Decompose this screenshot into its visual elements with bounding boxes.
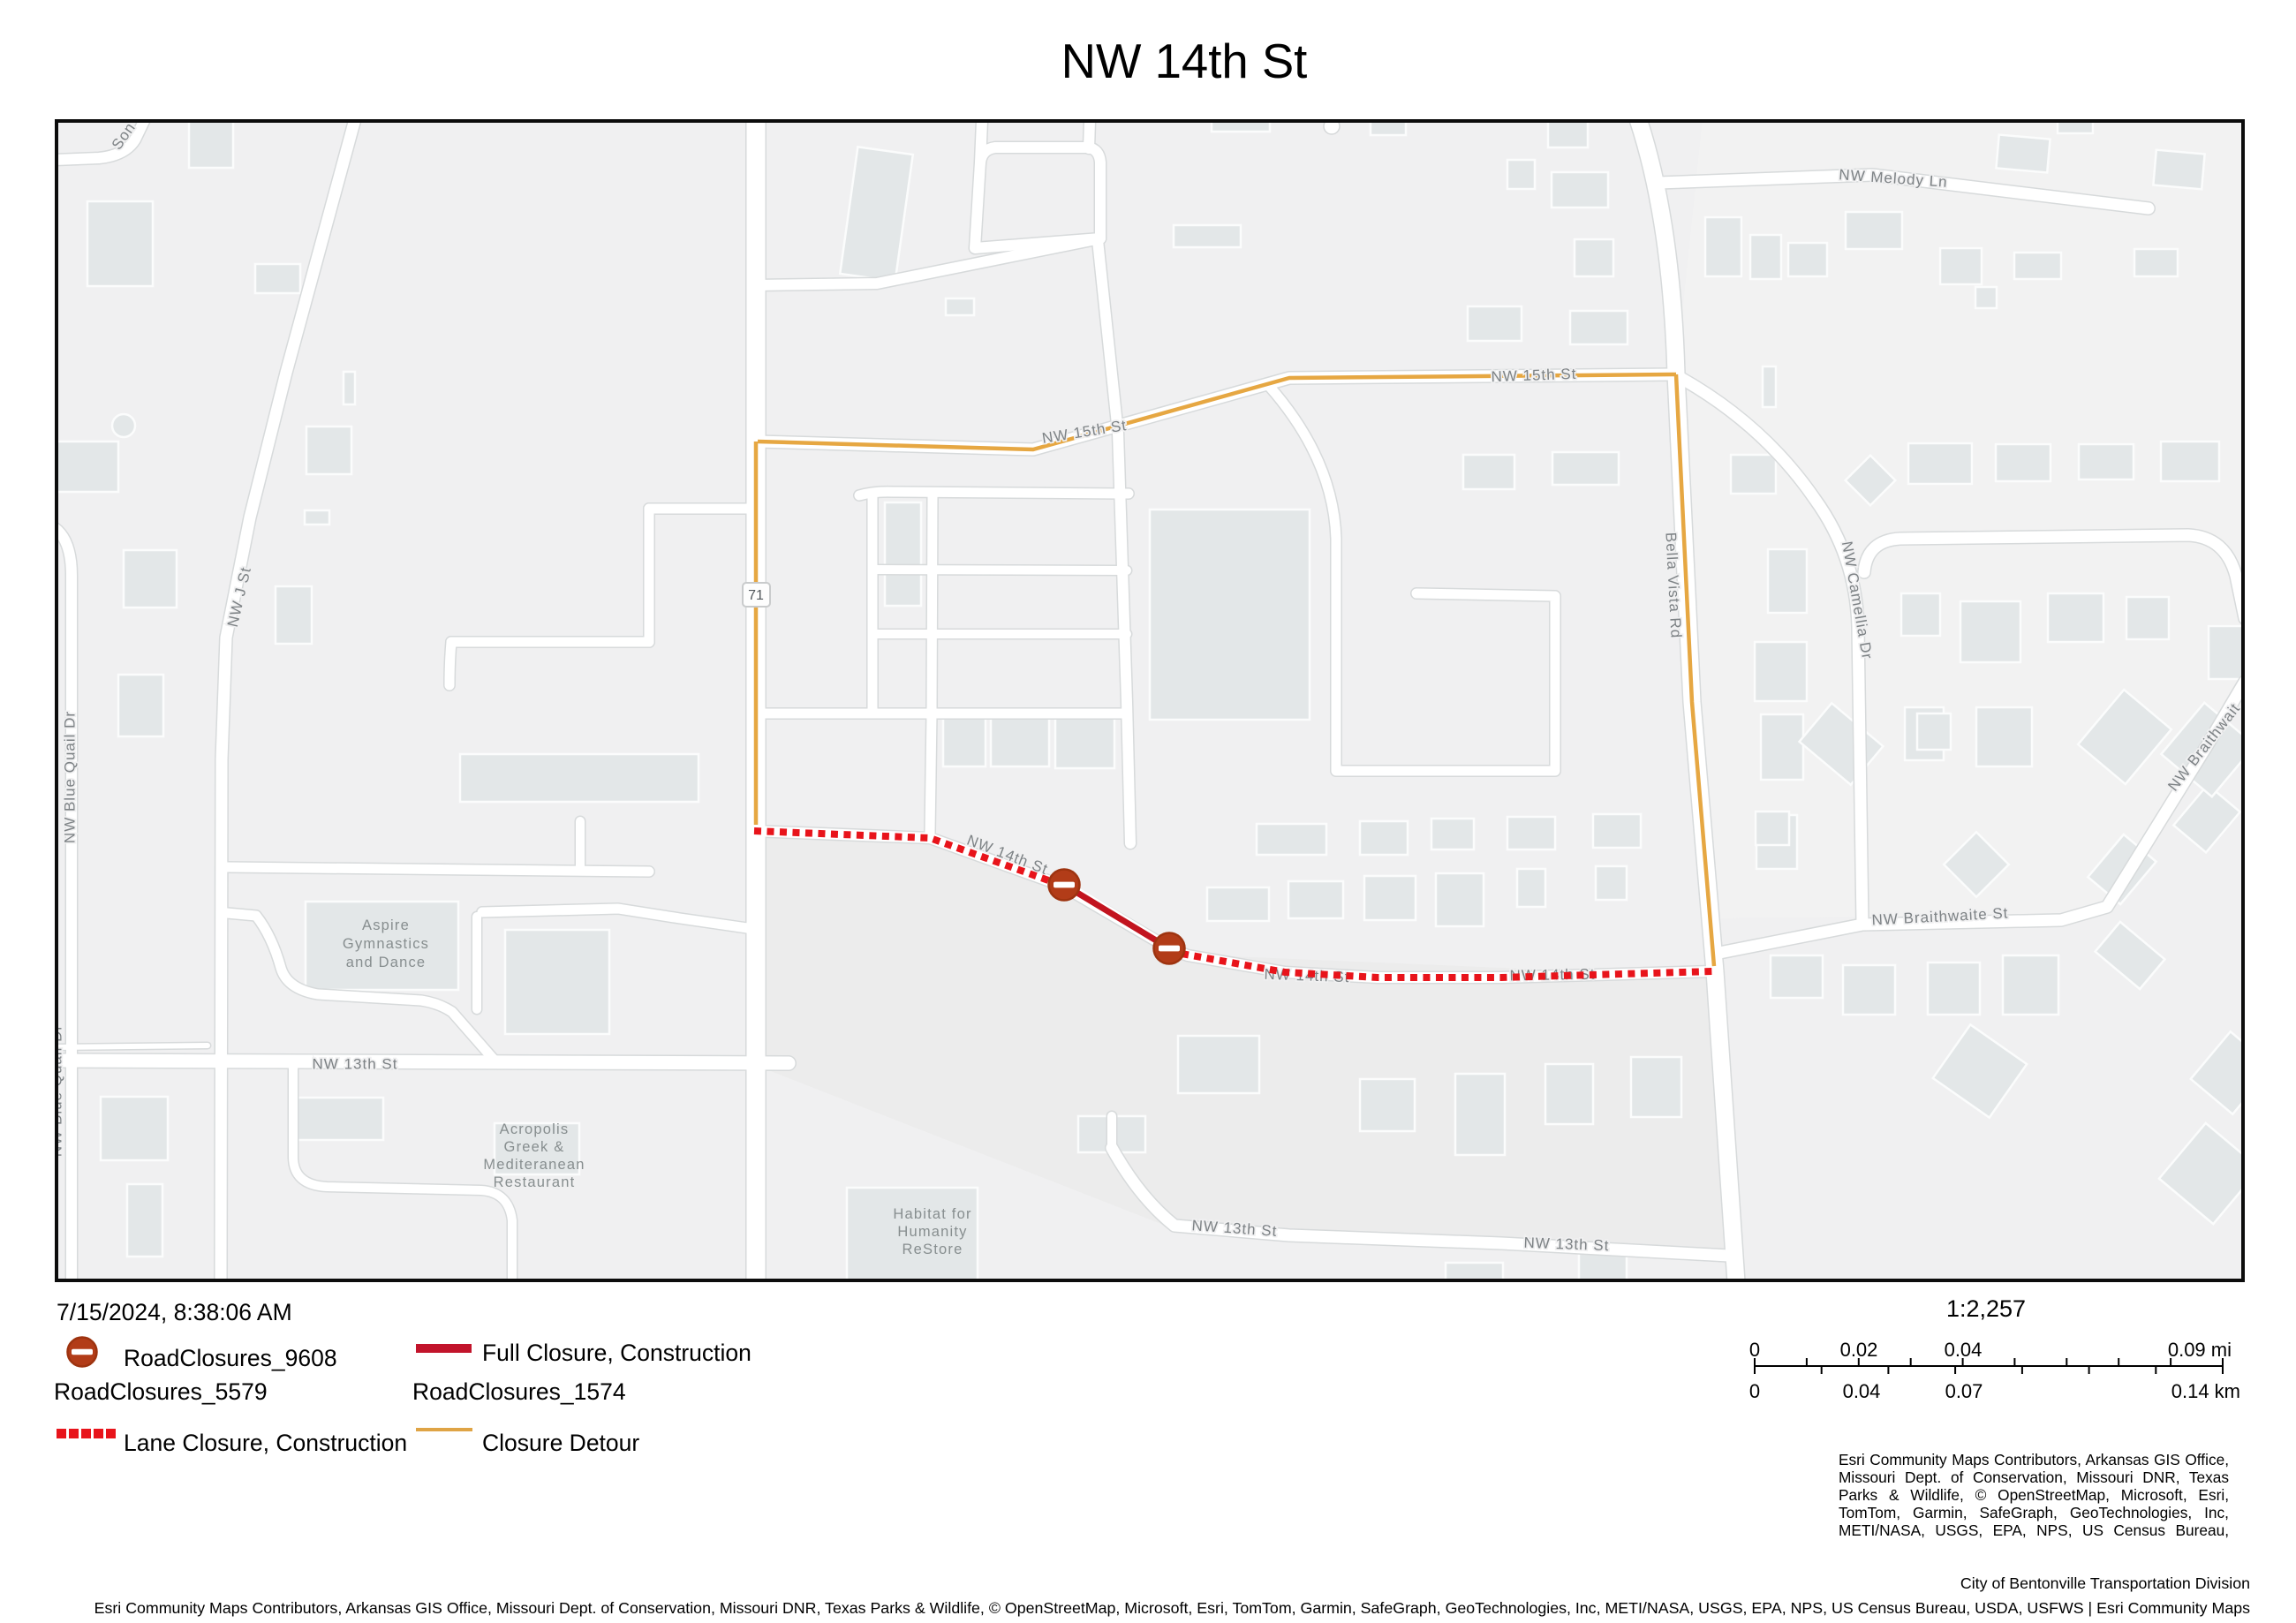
svg-text:0.04: 0.04 bbox=[1945, 1339, 1983, 1361]
svg-text:0: 0 bbox=[1749, 1380, 1760, 1402]
svg-text:0: 0 bbox=[1749, 1339, 1760, 1361]
svg-text:Aspire: Aspire bbox=[362, 917, 410, 933]
svg-text:NW Blue Quail Dr: NW Blue Quail Dr bbox=[62, 711, 79, 843]
svg-text:Acropolis: Acropolis bbox=[500, 1121, 570, 1137]
svg-text:71: 71 bbox=[748, 588, 764, 603]
svg-text:0.02: 0.02 bbox=[1840, 1339, 1878, 1361]
svg-text:NW 13th St: NW 13th St bbox=[1523, 1234, 1610, 1254]
svg-text:0.04: 0.04 bbox=[1843, 1380, 1881, 1402]
svg-text:NW 13th St: NW 13th St bbox=[313, 1056, 398, 1073]
svg-text:Gymnastics: Gymnastics bbox=[343, 936, 429, 952]
svg-text:0.09 mi: 0.09 mi bbox=[2168, 1339, 2232, 1361]
svg-text:NW 15th St: NW 15th St bbox=[1491, 366, 1577, 385]
svg-text:Mediteranean: Mediteranean bbox=[483, 1157, 585, 1173]
svg-text:ReStore: ReStore bbox=[903, 1242, 963, 1257]
svg-text:Restaurant: Restaurant bbox=[494, 1174, 576, 1190]
svg-text:0.14 km: 0.14 km bbox=[2171, 1380, 2240, 1402]
svg-text:and Dance: and Dance bbox=[346, 955, 427, 970]
svg-text:0.07: 0.07 bbox=[1945, 1380, 1983, 1402]
svg-text:Greek &: Greek & bbox=[504, 1139, 565, 1155]
svg-text:Humanity: Humanity bbox=[897, 1224, 967, 1240]
svg-text:Habitat for: Habitat for bbox=[893, 1206, 971, 1222]
